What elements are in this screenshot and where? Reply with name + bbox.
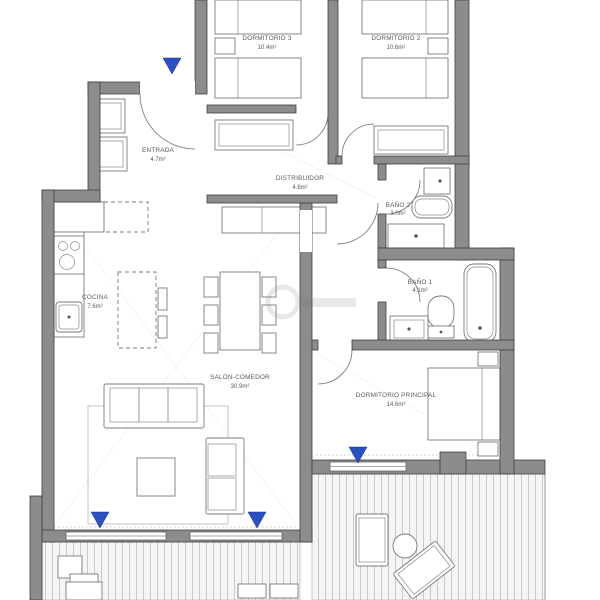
room-label-entrada: ENTRADA 4.7m² <box>142 147 174 163</box>
dormP-door-arc <box>318 350 352 384</box>
svg-text:4.7m²: 4.7m² <box>150 157 165 163</box>
hall-door-arc <box>337 203 378 244</box>
bed-principal <box>428 352 500 456</box>
bathroom2-tub-icon <box>412 196 452 218</box>
floor-plan: DORMITORIO 3 10.4m² DORMITORIO 2 10.6m² … <box>0 0 600 600</box>
window-marker-icon <box>163 58 181 74</box>
svg-text:14.6m²: 14.6m² <box>387 402 406 408</box>
dining-table <box>204 272 276 353</box>
wardrobe-dormitorio-2 <box>374 126 448 154</box>
outdoor-chair <box>66 574 102 600</box>
svg-text:ENTRADA: ENTRADA <box>142 147 174 154</box>
svg-text:DORMITORIO 2: DORMITORIO 2 <box>371 35 420 42</box>
sun-lounger-1 <box>356 514 388 566</box>
room-label-bano-2: BAÑO 2 3.0m² <box>386 200 411 217</box>
outdoor-seat <box>238 584 266 598</box>
nightstand <box>478 442 498 456</box>
nightstand <box>478 352 498 366</box>
svg-text:DISTRIBUIDOR: DISTRIBUIDOR <box>276 175 324 182</box>
loveseat <box>206 438 244 514</box>
room-label-distribuidor: DISTRIBUIDOR 4.6m² <box>276 175 324 191</box>
furniture <box>54 0 500 524</box>
floor-plan-canvas: DORMITORIO 3 10.4m² DORMITORIO 2 10.6m² … <box>0 0 600 600</box>
kitchen-sink-icon <box>56 302 82 332</box>
svg-text:BAÑO 1: BAÑO 1 <box>408 277 433 286</box>
sofa <box>104 384 204 428</box>
window <box>330 462 406 471</box>
bathroom2-sink-icon <box>424 168 450 194</box>
shower-tray-icon <box>388 224 444 248</box>
nightstand <box>215 38 235 54</box>
outdoor-seat <box>270 584 298 598</box>
hall-closet <box>215 120 293 150</box>
kitchen-island <box>118 272 167 348</box>
bathroom1-sink-icon <box>390 316 428 342</box>
room-label-salon-comedor: SALON-COMEDOR 30.9m² <box>210 374 270 390</box>
svg-text:COCINA: COCINA <box>82 294 109 301</box>
svg-text:30.9m²: 30.9m² <box>231 384 250 390</box>
toilet-icon <box>428 296 454 338</box>
room-label-bano-1: BAÑO 1 4.1m² <box>408 277 433 294</box>
entry-door-arc <box>140 94 195 149</box>
svg-text:3.0m²: 3.0m² <box>390 211 405 217</box>
svg-text:10.6m²: 10.6m² <box>387 45 406 51</box>
window-marker-icon <box>91 512 109 528</box>
window-marker-icon <box>248 512 266 528</box>
outdoor-side-table <box>393 534 417 558</box>
room-label-dormitorio-3: DORMITORIO 3 10.4m² <box>242 35 291 51</box>
stove-icon <box>54 236 84 274</box>
svg-text:SALON-COMEDOR: SALON-COMEDOR <box>210 374 270 381</box>
room-label-dormitorio-principal: DORMITORIO PRINCIPAL 14.6m² <box>356 392 437 408</box>
bathroom1-tub-icon <box>464 264 496 342</box>
nightstand <box>428 38 448 54</box>
window <box>66 532 166 540</box>
svg-text:7.6m²: 7.6m² <box>87 304 102 310</box>
room-label-cocina: COCINA 7.6m² <box>82 294 109 310</box>
svg-text:10.4m²: 10.4m² <box>258 45 277 51</box>
svg-text:BAÑO 2: BAÑO 2 <box>386 200 411 209</box>
svg-text:DORMITORIO 3: DORMITORIO 3 <box>242 35 291 42</box>
dorm2-door-arc <box>342 124 374 156</box>
svg-text:4.1m²: 4.1m² <box>412 288 427 294</box>
room-label-dormitorio-2: DORMITORIO 2 10.6m² <box>371 35 420 51</box>
dorm3-door-arc <box>296 113 328 145</box>
svg-text:4.6m²: 4.6m² <box>292 185 307 191</box>
coffee-table <box>137 458 175 496</box>
svg-text:DORMITORIO PRINCIPAL: DORMITORIO PRINCIPAL <box>356 392 437 399</box>
window <box>190 532 282 540</box>
